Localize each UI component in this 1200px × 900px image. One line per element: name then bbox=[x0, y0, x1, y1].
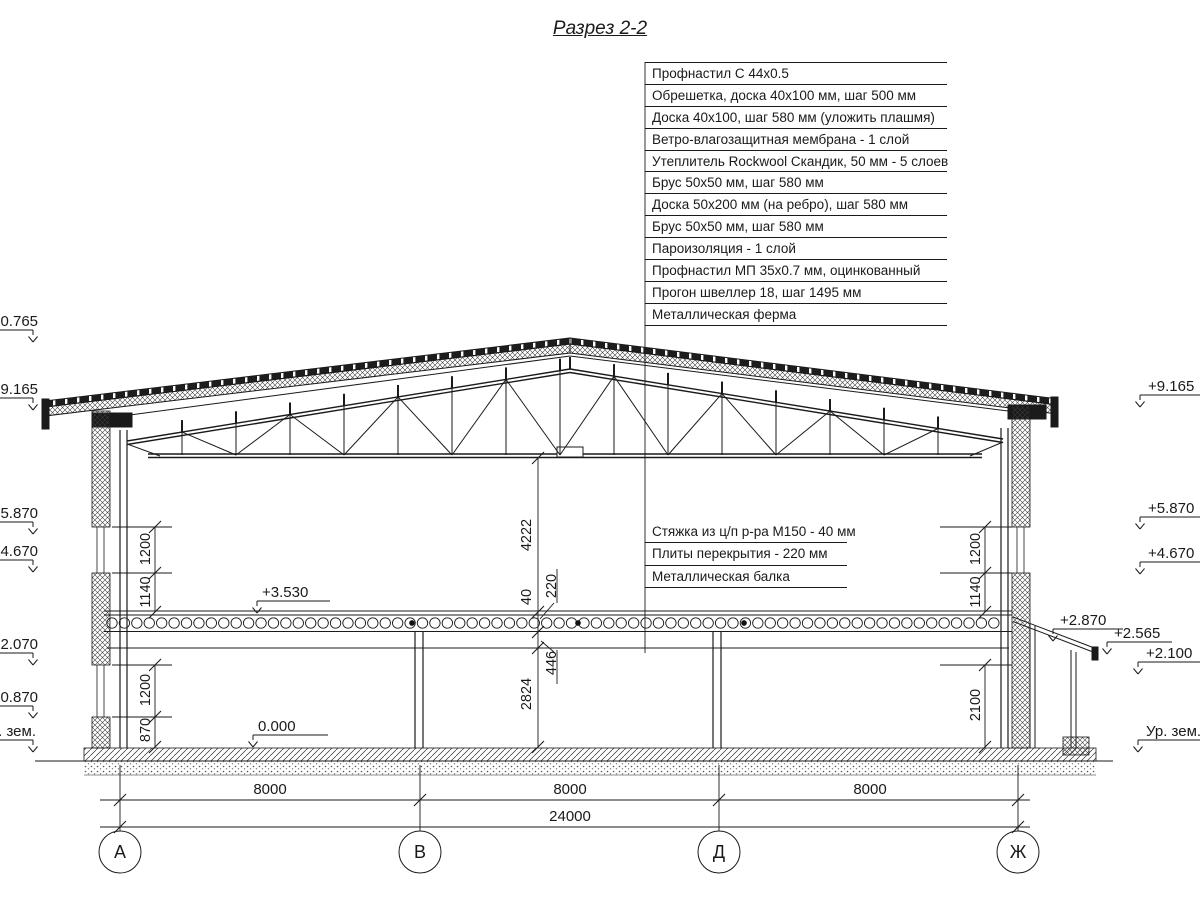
elevation-label-left: +0.870 bbox=[0, 689, 38, 706]
columns bbox=[120, 428, 1008, 748]
elevation-label-left: Ур. зем. bbox=[0, 723, 36, 740]
drawing-title: Разрез 2-2 bbox=[500, 18, 700, 40]
roof-callout-row: Доска 50х200 мм (на ребро), шаг 580 мм bbox=[645, 194, 947, 216]
floor-callout-row: Плиты перекрытия - 220 мм bbox=[645, 543, 847, 565]
elevation-label-left: +4.670 bbox=[0, 543, 38, 560]
dim-label: 1140 bbox=[966, 562, 986, 622]
roof-sheeting-left bbox=[45, 338, 570, 407]
eave-fascia-right bbox=[1051, 397, 1058, 427]
floor-callout-row: Стяжка из ц/п р-ра М150 - 40 мм bbox=[645, 521, 847, 543]
elevation-label-left: +9.165 bbox=[0, 381, 38, 398]
roof-callout-row: Брус 50х50 мм, шаг 580 мм bbox=[645, 216, 947, 238]
axis-bubble-label: Ж bbox=[997, 831, 1039, 873]
elevation-label-right: +9.165 bbox=[1148, 378, 1194, 395]
axis-bubble-label: В bbox=[399, 831, 441, 873]
hollow-core-slabs bbox=[107, 618, 999, 628]
roof-insulation-right bbox=[570, 344, 1058, 414]
zero-level-label: 0.000 bbox=[258, 718, 296, 735]
span-dim-label: 8000 bbox=[553, 781, 586, 798]
roof-callout-list: Профнастил С 44х0.5 Обрешетка, доска 40х… bbox=[645, 62, 947, 326]
slab-level-label: +3.530 bbox=[262, 584, 308, 601]
roof-callout-row: Профнастил МП 35х0.7 мм, оцинкованный bbox=[645, 260, 947, 282]
span-dim-label: 8000 bbox=[253, 781, 286, 798]
floor-callout-row: Металлическая балка bbox=[645, 566, 847, 588]
elevation-label-right: Ур. зем. bbox=[1146, 723, 1200, 740]
roof-callout-row: Металлическая ферма bbox=[645, 304, 947, 326]
eave-fascia-left bbox=[42, 399, 49, 429]
axis-bubble-label: А bbox=[99, 831, 141, 873]
elevation-label-left: +10.765 bbox=[0, 313, 38, 330]
axis-bubbles bbox=[99, 831, 1039, 873]
dim-label: 40 bbox=[517, 567, 537, 627]
dimension-ticks bbox=[114, 452, 1024, 833]
dim-label: 1140 bbox=[136, 562, 156, 622]
roof-callout-row: Утеплитель Rockwool Скандик, 50 мм - 5 с… bbox=[645, 151, 947, 173]
axis-bubble-label: Д bbox=[698, 831, 740, 873]
section-drawing bbox=[0, 0, 1200, 900]
dim-label: 4222 bbox=[517, 505, 537, 565]
roof-callout-row: Профнастил С 44х0.5 bbox=[645, 63, 947, 85]
dim-label: 2824 bbox=[517, 664, 537, 724]
dim-label: 2100 bbox=[966, 675, 986, 735]
roof-insulation-left bbox=[45, 344, 570, 416]
floor-callout-list: Стяжка из ц/п р-ра М150 - 40 мм Плиты пе… bbox=[645, 521, 847, 588]
ground bbox=[35, 748, 1113, 775]
total-dim-label: 24000 bbox=[549, 808, 591, 825]
drawing-sheet: Разрез 2-2 Профнастил С 44х0.5 Обрешетка… bbox=[0, 0, 1200, 900]
span-dim-label: 8000 bbox=[853, 781, 886, 798]
dim-label: 220 bbox=[542, 556, 562, 616]
dim-label: 446 bbox=[542, 633, 562, 693]
elevation-label-right: +5.870 bbox=[1148, 500, 1194, 517]
elevation-label-left: +5.870 bbox=[0, 505, 38, 522]
roof-callout-row: Доска 40х100, шаг 580 мм (уложить плашмя… bbox=[645, 107, 947, 129]
elevation-label-right: +4.670 bbox=[1148, 545, 1194, 562]
roof-callout-row: Пароизоляция - 1 слой bbox=[645, 238, 947, 260]
roof-callout-row: Прогон швеллер 18, шаг 1495 мм bbox=[645, 282, 947, 304]
dim-label: 870 bbox=[136, 700, 156, 760]
elevation-label-right: +2.870 bbox=[1060, 612, 1106, 629]
roof-sheeting-right bbox=[570, 338, 1058, 405]
elevation-label-right: +2.565 bbox=[1114, 625, 1160, 642]
roof-callout-row: Брус 50х50 мм, шаг 580 мм bbox=[645, 172, 947, 194]
roof-callout-row: Обрешетка, доска 40х100 мм, шаг 500 мм bbox=[645, 85, 947, 107]
roof-callout-row: Ветро-влагозащитная мембрана - 1 слой bbox=[645, 129, 947, 151]
truss-gusset bbox=[557, 447, 583, 457]
elevation-label-left: +2.070 bbox=[0, 636, 38, 653]
elevation-label-right: +2.100 bbox=[1146, 645, 1192, 662]
